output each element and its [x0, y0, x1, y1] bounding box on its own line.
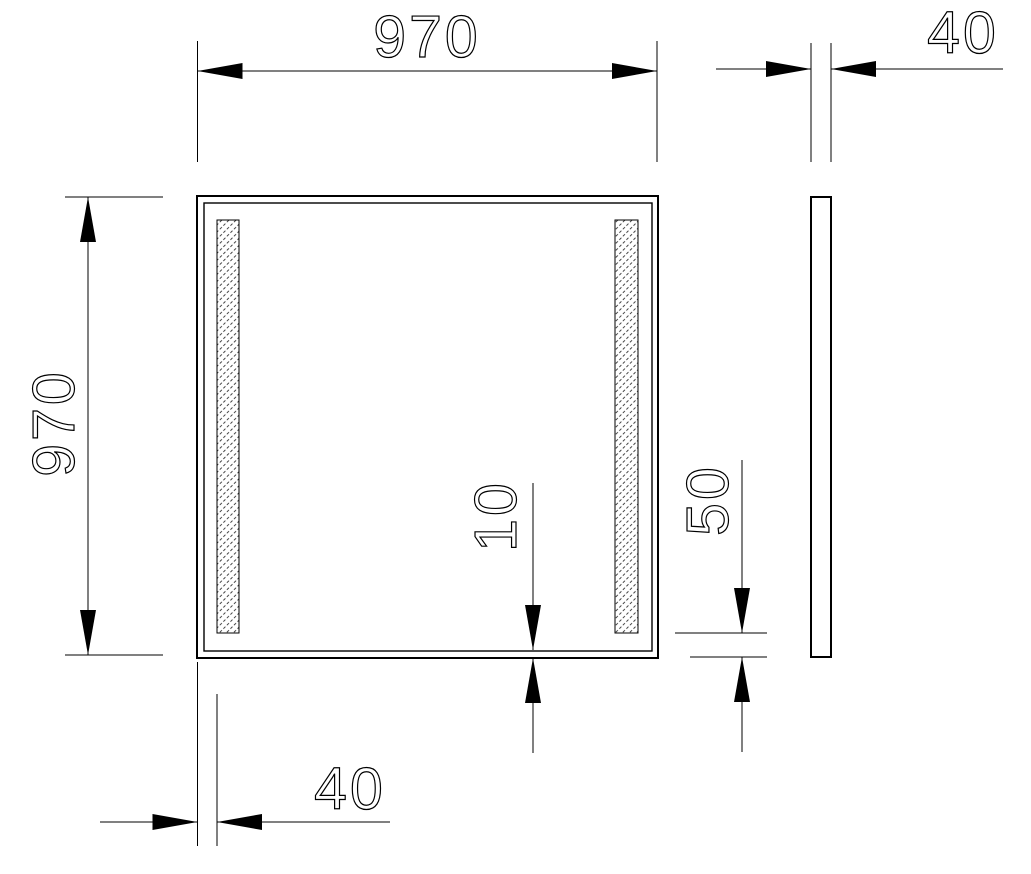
- dim-strip-bottom-offset: 50: [675, 460, 767, 752]
- arrowhead-up: [80, 197, 96, 242]
- arrowhead-left: [217, 814, 262, 830]
- dim-strip-side-offset: 40: [100, 662, 390, 846]
- arrowhead-left: [831, 61, 876, 77]
- side-view: [811, 197, 831, 657]
- dim-strip-bottom-offset-label: 50: [675, 464, 741, 536]
- dim-left-height: 970: [21, 197, 163, 655]
- dim-left-height-label: 970: [21, 369, 87, 476]
- arrowhead-right: [612, 63, 657, 79]
- drawing-canvas: 970 40 970 10: [0, 0, 1031, 874]
- dim-side-thickness-label: 40: [927, 0, 999, 66]
- arrowhead-left: [198, 63, 243, 79]
- arrowhead-right: [766, 61, 811, 77]
- arrowhead-down: [734, 588, 750, 633]
- led-strip-right: [615, 220, 638, 633]
- arrowhead-up: [734, 657, 750, 702]
- technical-drawing: 970 40 970 10: [0, 0, 1031, 874]
- dim-frame-edge-gap-label: 10: [463, 480, 529, 552]
- arrowhead-right: [153, 814, 198, 830]
- front-view-inner-frame: [204, 203, 652, 651]
- side-view-outline: [811, 197, 831, 657]
- dim-side-thickness: 40: [716, 0, 1003, 162]
- led-strip-left: [217, 220, 239, 633]
- dim-strip-side-offset-label: 40: [314, 756, 386, 822]
- dim-top-width-label: 970: [373, 4, 480, 70]
- arrowhead-down: [80, 610, 96, 655]
- arrowhead-up: [525, 658, 541, 703]
- front-view: [197, 196, 658, 658]
- dim-top-width: 970: [198, 4, 658, 162]
